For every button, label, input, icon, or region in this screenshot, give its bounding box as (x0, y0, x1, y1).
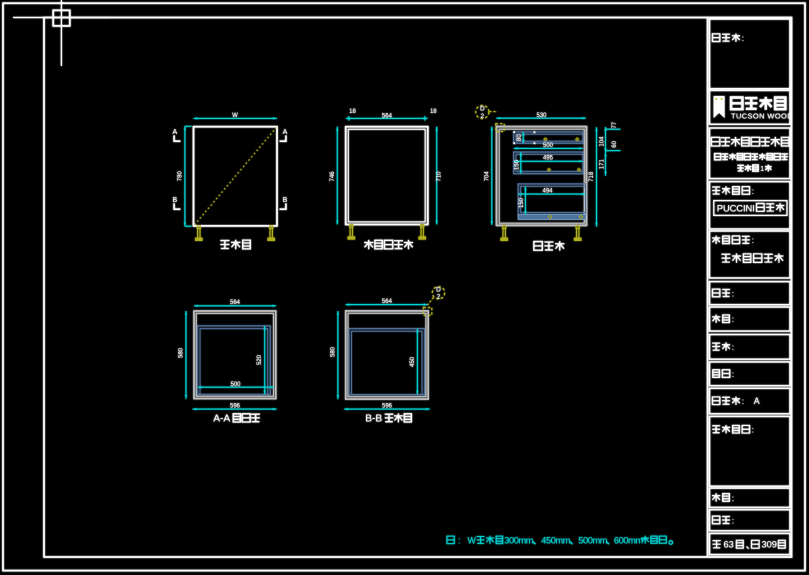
svg-text:D: D (436, 286, 441, 293)
svg-text:450mm: 450mm (541, 536, 571, 546)
svg-text:150: 150 (514, 159, 520, 170)
svg-text:80: 80 (517, 134, 523, 141)
svg-text:60: 60 (612, 140, 618, 147)
svg-text::: : (732, 314, 734, 324)
svg-text:520: 520 (257, 354, 263, 365)
svg-text:W: W (232, 113, 238, 119)
svg-text::: : (732, 493, 734, 503)
svg-text:77: 77 (612, 121, 618, 128)
svg-text:63: 63 (724, 540, 734, 550)
svg-text:495: 495 (543, 156, 554, 162)
svg-text::: : (752, 425, 754, 435)
svg-text:300mm: 300mm (504, 536, 534, 546)
svg-text:710: 710 (437, 171, 443, 182)
svg-text:A: A (283, 129, 288, 136)
svg-text:W: W (468, 536, 477, 546)
svg-text:580: 580 (179, 347, 185, 358)
svg-text:718: 718 (589, 171, 595, 182)
svg-text:600mm: 600mm (614, 536, 644, 546)
svg-text:580: 580 (331, 346, 337, 357)
svg-text:A: A (172, 129, 177, 136)
svg-text:500mm: 500mm (578, 536, 608, 546)
svg-text:564: 564 (230, 300, 241, 306)
svg-text:500: 500 (543, 143, 554, 149)
svg-text:TUCSON WOOD: TUCSON WOOD (731, 111, 793, 120)
svg-text:PUCCINI: PUCCINI (717, 202, 755, 213)
svg-text:104: 104 (600, 136, 606, 147)
svg-text:596: 596 (230, 404, 241, 410)
svg-text::: : (458, 536, 461, 546)
svg-text::: : (732, 288, 734, 298)
svg-text::: : (732, 515, 734, 525)
svg-text:780: 780 (178, 171, 184, 182)
svg-text:564: 564 (382, 113, 393, 119)
svg-text::: : (752, 186, 754, 196)
svg-text::: : (732, 369, 734, 379)
svg-text:530: 530 (536, 113, 547, 119)
svg-text:746: 746 (330, 171, 336, 182)
svg-text:2: 2 (480, 113, 484, 120)
svg-text::: : (742, 396, 744, 406)
svg-text:B: B (172, 197, 177, 204)
svg-text:A-A: A-A (213, 413, 230, 424)
svg-text:B: B (283, 197, 288, 204)
svg-text:171: 171 (600, 159, 606, 170)
svg-text:2: 2 (437, 294, 441, 301)
svg-text::: : (752, 235, 754, 245)
svg-text:150: 150 (519, 197, 525, 208)
svg-text:18: 18 (349, 109, 356, 115)
svg-text:D: D (480, 105, 485, 112)
svg-text:494: 494 (542, 189, 553, 195)
svg-text:596: 596 (382, 404, 393, 410)
svg-text:564: 564 (382, 299, 393, 305)
svg-text:A: A (754, 396, 760, 406)
svg-text:309: 309 (762, 540, 777, 550)
svg-text:450: 450 (410, 356, 416, 367)
svg-text:500: 500 (230, 382, 241, 388)
svg-text::: : (742, 33, 744, 43)
svg-text:704: 704 (484, 171, 490, 182)
svg-text:1: 1 (760, 164, 764, 173)
svg-text:18: 18 (430, 109, 437, 115)
svg-text::: : (732, 342, 734, 352)
svg-text:B-B: B-B (365, 413, 382, 424)
